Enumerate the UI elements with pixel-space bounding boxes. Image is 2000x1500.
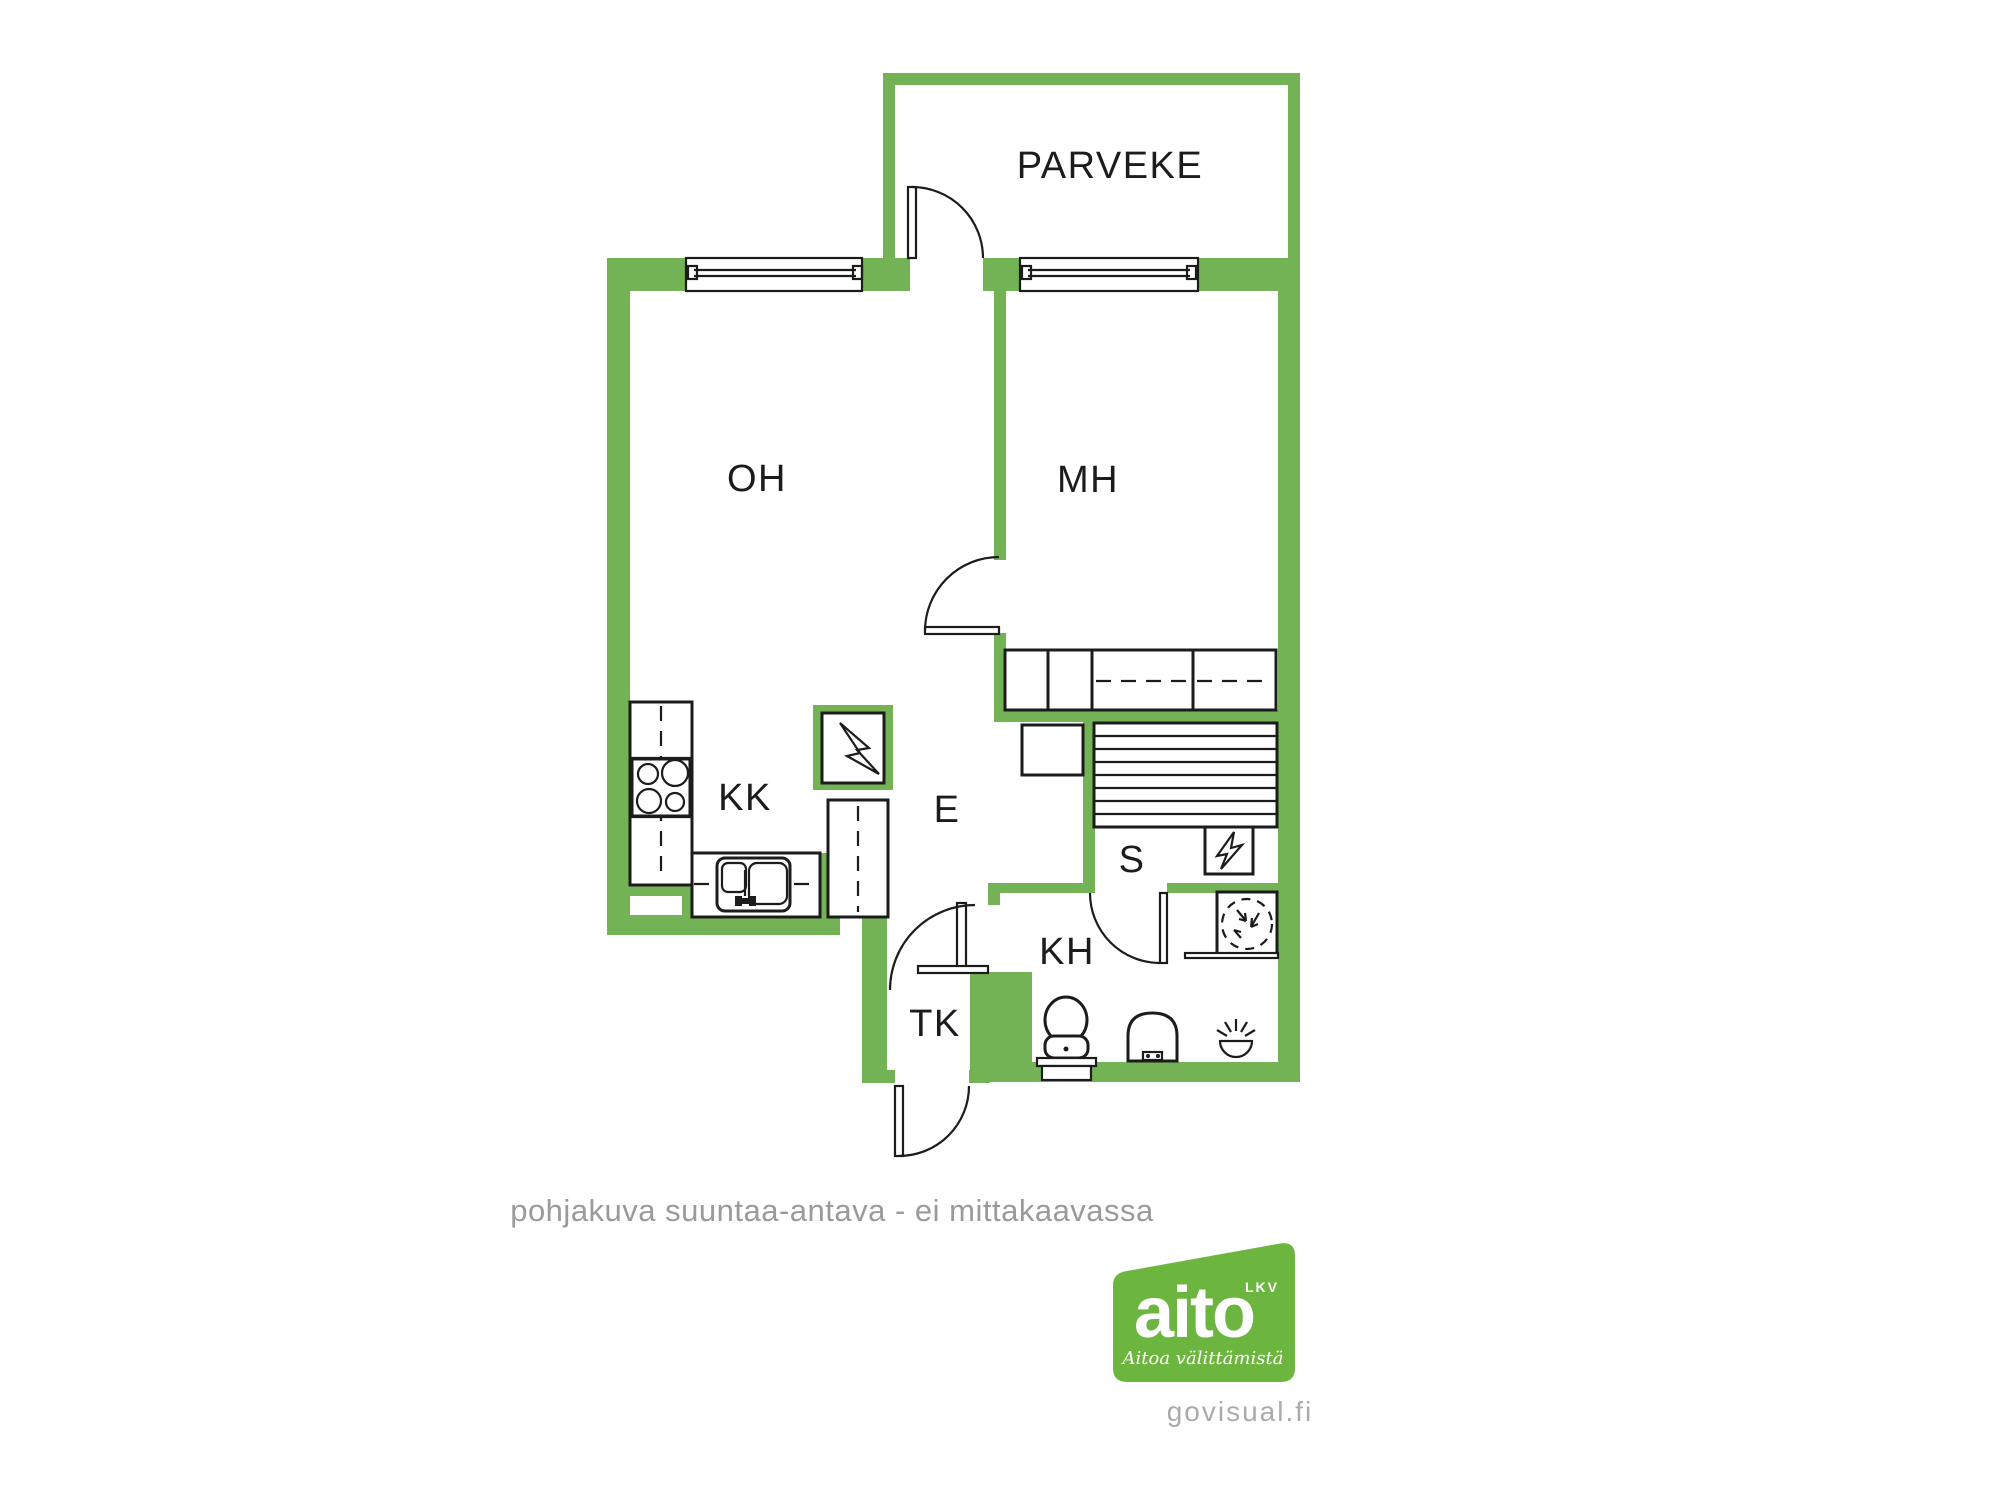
- e-bottom-wall: [988, 883, 1093, 893]
- tk-bottom-left: [862, 1070, 895, 1083]
- window-oh: [686, 258, 862, 291]
- room-label-kk: KK: [718, 777, 772, 819]
- right-outer-wall: [1278, 258, 1300, 1082]
- hall-cabinet-box: [1022, 725, 1083, 775]
- oh-mh-wall-upper: [994, 288, 1006, 560]
- balcony-wall-left: [883, 73, 895, 258]
- wardrobe-row: [1005, 650, 1276, 710]
- watermark-url: govisual.fi: [1167, 1396, 1314, 1427]
- toilet-icon: [1037, 997, 1096, 1080]
- room-label-s: S: [1119, 839, 1146, 881]
- floor-drain-icon: [1217, 1019, 1255, 1057]
- wall-niche: [630, 896, 682, 915]
- room-label-tk: TK: [909, 1003, 961, 1045]
- logo-lkv-text: LKV: [1245, 1279, 1279, 1295]
- floor-plan-drawing: PARVEKE OH MH KK E S KH TK pohjakuva suu…: [0, 0, 2000, 1500]
- washing-machine-icon: [1185, 892, 1278, 958]
- balcony-door: [908, 187, 983, 258]
- floor-plan-page: PARVEKE OH MH KK E S KH TK pohjakuva suu…: [0, 0, 2000, 1500]
- left-outer-wall: [607, 258, 630, 935]
- sauna-heater-icon: [1205, 827, 1253, 874]
- bedroom-door: [925, 557, 999, 634]
- kitchen-sink-icon: [692, 853, 820, 917]
- window-mh: [1020, 258, 1198, 291]
- electrical-panel-icon: [822, 713, 884, 783]
- hall-closet: [828, 800, 888, 917]
- disclaimer-caption: pohjakuva suuntaa-antava - ei mittakaava…: [510, 1193, 1154, 1228]
- window-symbols: [686, 258, 1198, 291]
- kh-corner-block: [970, 972, 1032, 1082]
- room-label-kh: KH: [1039, 931, 1095, 973]
- room-label-mh: MH: [1057, 459, 1119, 501]
- walls: [607, 73, 1300, 1083]
- sauna-benches: [1094, 723, 1277, 827]
- balcony-wall-top: [883, 73, 1300, 85]
- e-bottom-wall-end: [988, 883, 1000, 905]
- logo-tagline: Aitoa välittämistä: [1121, 1348, 1284, 1369]
- room-label-oh: OH: [727, 458, 787, 500]
- balcony-wall-right: [1288, 73, 1300, 258]
- mh-bottom-wall: [994, 710, 1283, 722]
- stove-icon: [632, 759, 690, 816]
- logo-brand-text: aito: [1134, 1273, 1254, 1353]
- room-label-e: E: [934, 789, 961, 831]
- sauna-door: [1090, 893, 1167, 963]
- washbasin-icon: [1128, 1013, 1177, 1061]
- aito-lkv-logo: aito LKV Aitoa välittämistä: [1113, 1243, 1295, 1382]
- top-wall-pier-2: [983, 258, 1020, 291]
- tk-left-wall: [862, 917, 887, 1083]
- top-wall-pier-1: [862, 258, 910, 291]
- entrance-door: [895, 1086, 969, 1156]
- room-label-parveke: PARVEKE: [1017, 145, 1204, 187]
- bottom-left-wall: [607, 917, 840, 935]
